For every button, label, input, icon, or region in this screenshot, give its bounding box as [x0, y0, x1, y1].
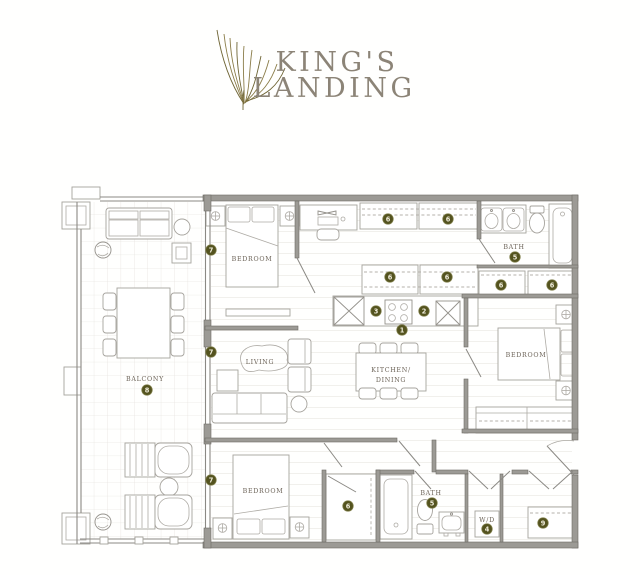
side-table-round: [174, 219, 190, 235]
lamp-icon: [285, 212, 294, 221]
svg-text:7: 7: [209, 476, 214, 484]
svg-text:5: 5: [513, 253, 518, 261]
keynote-marker-1: 1: [397, 325, 408, 336]
bedroom-3-label: BEDROOM: [243, 488, 284, 495]
kitchen-island: [333, 296, 478, 326]
bath-2-label: BATH: [420, 490, 441, 497]
balcony-label: BALCONY: [126, 376, 164, 383]
bath-sink: [439, 512, 464, 536]
wd-label: W/D: [479, 517, 495, 524]
lounge-side-table: [160, 478, 178, 496]
kitchen-label-line1: KITCHEN/: [371, 367, 411, 374]
svg-text:6: 6: [550, 281, 555, 289]
armchair: [288, 367, 311, 392]
svg-text:5: 5: [430, 499, 435, 507]
keynote-marker-6: 6: [383, 214, 394, 225]
lounge-chair-2: [125, 495, 192, 529]
floor-plan-svg: KING'S LANDING: [0, 0, 640, 575]
svg-text:6: 6: [388, 273, 393, 281]
keynote-marker-3: 3: [371, 306, 382, 317]
lamp-icon: [562, 386, 571, 395]
outdoor-sofa: [106, 208, 172, 239]
svg-text:6: 6: [445, 273, 450, 281]
keynote-marker-2: 2: [419, 306, 430, 317]
keynote-marker-7: 7: [206, 347, 217, 358]
living-label: LIVING: [246, 359, 274, 366]
lamp-icon: [295, 523, 304, 532]
media-console: [226, 309, 290, 316]
desk-chair: [317, 229, 339, 240]
svg-text:6: 6: [386, 215, 391, 223]
side-table-square: [217, 370, 238, 391]
outdoor-dining-table: [103, 288, 184, 358]
keynote-marker-6: 6: [547, 280, 558, 291]
keynote-marker-4: 4: [482, 524, 493, 535]
svg-text:9: 9: [541, 519, 546, 527]
sofa: [212, 393, 287, 423]
floorplan-page: KING'S LANDING: [0, 0, 640, 575]
keynote-marker-7: 7: [206, 245, 217, 256]
logo-title-line2: LANDING: [252, 73, 415, 104]
kitchen-label-line2: DINING: [376, 377, 406, 384]
keynote-marker-5: 5: [427, 498, 438, 509]
bedroom-1-label: BEDROOM: [232, 256, 273, 263]
svg-text:3: 3: [374, 307, 379, 315]
keynote-marker-9: 9: [538, 518, 549, 529]
svg-text:1: 1: [400, 326, 405, 334]
bath-1-label: BATH: [503, 244, 524, 251]
planter-box: [172, 243, 191, 263]
lounge-chair-1: [125, 443, 192, 477]
svg-text:7: 7: [209, 348, 214, 356]
svg-text:6: 6: [346, 502, 351, 510]
bedroom-2-label: BEDROOM: [506, 352, 547, 359]
logo: KING'S LANDING: [217, 30, 416, 110]
lamp-icon: [211, 212, 220, 221]
coffee-table-round: [291, 396, 307, 412]
bed: [233, 455, 289, 539]
keynote-marker-6: 6: [385, 272, 396, 283]
lamp-icon: [562, 310, 571, 319]
svg-text:6: 6: [499, 281, 504, 289]
keynote-marker-6: 6: [442, 272, 453, 283]
svg-text:4: 4: [485, 525, 490, 533]
keynote-marker-7: 7: [206, 475, 217, 486]
entry-closet: [528, 507, 573, 538]
svg-text:2: 2: [422, 307, 427, 315]
keynote-marker-5: 5: [510, 252, 521, 263]
svg-text:7: 7: [209, 246, 214, 254]
svg-text:6: 6: [446, 215, 451, 223]
keynote-marker-8: 8: [142, 385, 153, 396]
keynote-marker-6: 6: [443, 214, 454, 225]
toilet: [530, 206, 545, 233]
bathtub: [380, 475, 412, 539]
keynote-marker-6: 6: [343, 501, 354, 512]
keynote-marker-6: 6: [496, 280, 507, 291]
armchair: [288, 339, 311, 364]
svg-text:8: 8: [145, 386, 150, 394]
double-vanity: [479, 205, 526, 233]
lamp-icon: [218, 524, 227, 533]
